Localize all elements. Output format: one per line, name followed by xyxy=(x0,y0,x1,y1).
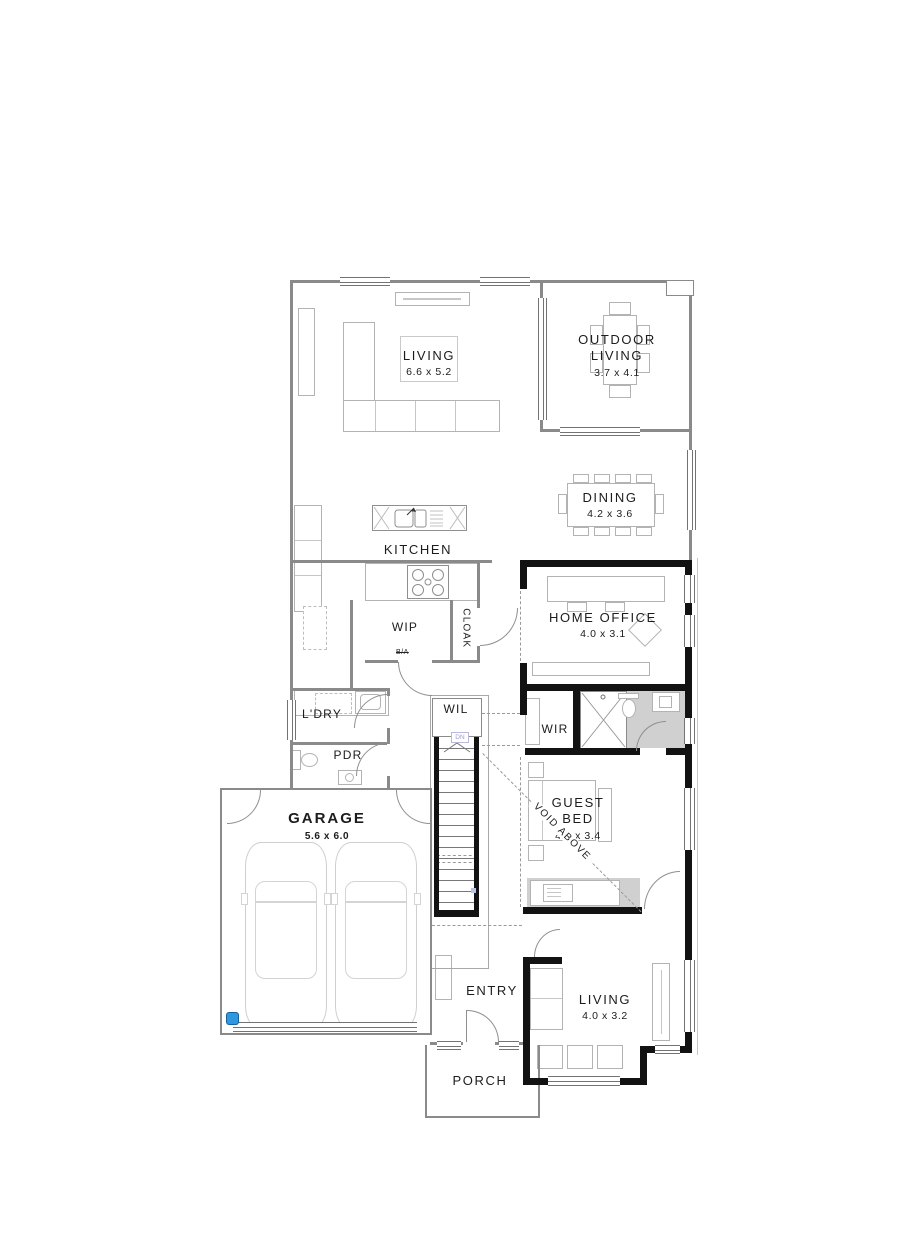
wall-segment xyxy=(477,563,480,608)
wil-label: WIL xyxy=(444,702,469,717)
room-name: CLOAK xyxy=(459,608,472,648)
porch-label: PORCH xyxy=(453,1073,508,1089)
wall-segment xyxy=(290,560,492,563)
dashed-line xyxy=(432,925,522,926)
floor-plan: LIVING 6.6 x 5.2 OUTDOOR LIVING 3.7 x 4.… xyxy=(215,270,697,1128)
room-dims: 3.7 x 4.1 xyxy=(572,367,662,379)
front-door-leaf xyxy=(466,1010,467,1042)
dn-annotation: DN xyxy=(451,732,469,743)
credenza xyxy=(532,662,650,676)
stairs-cut-line xyxy=(437,862,477,863)
living-top-stub-wall xyxy=(523,957,562,964)
dining-chair xyxy=(573,474,589,483)
home-office-label: HOME OFFICE 4.0 x 3.1 xyxy=(549,610,657,640)
room-name: KITCHEN xyxy=(384,542,452,558)
room-name: LIVING xyxy=(403,348,455,364)
wip-door-arc xyxy=(398,662,432,696)
wall-segment xyxy=(350,600,353,688)
room-name: WIR xyxy=(542,722,569,737)
room-name: WIL xyxy=(444,702,469,717)
room-dims: 5.6 x 6.0 xyxy=(288,831,366,842)
dashed-wall-over xyxy=(520,591,521,661)
bedside-table xyxy=(528,762,544,778)
room-name: WIP xyxy=(392,620,418,635)
window xyxy=(655,1045,680,1054)
room-dims: 4.0 x 3.1 xyxy=(549,628,657,640)
cabinet-divider xyxy=(295,540,321,541)
dining-chair xyxy=(594,527,610,536)
living-room-label: LIVING 6.6 x 5.2 xyxy=(403,348,455,378)
wall-segment xyxy=(290,688,390,691)
dashed-line xyxy=(482,745,520,746)
window xyxy=(340,277,390,286)
guest-bed-door-arc xyxy=(644,871,680,909)
guest-living-label: LIVING 4.0 x 3.2 xyxy=(579,992,631,1022)
stairs xyxy=(439,748,474,911)
window xyxy=(687,450,696,530)
shower xyxy=(580,691,627,754)
room-name: PORCH xyxy=(453,1073,508,1089)
wir-label: WIR xyxy=(542,722,569,737)
laundry-label: L'DRY xyxy=(302,707,342,722)
garage-door-panel xyxy=(233,1022,417,1032)
sofa-seam xyxy=(455,401,456,431)
dining-chair xyxy=(615,527,631,536)
room-name: HOME OFFICE xyxy=(549,610,657,626)
bath-basin xyxy=(659,696,672,708)
front-door-arc xyxy=(467,1010,499,1042)
dining-label: DINING 4.2 x 3.6 xyxy=(582,490,637,520)
kitchenette-sink xyxy=(543,884,573,902)
garage-tap-icon xyxy=(226,1012,239,1025)
sink-lines xyxy=(547,896,561,897)
room-name: L'DRY xyxy=(302,707,342,722)
kitchen-island xyxy=(372,503,467,538)
sofa-guest xyxy=(530,968,563,1030)
window xyxy=(684,960,695,1032)
room-dims: 4.0 x 3.2 xyxy=(579,1010,631,1022)
tv-line xyxy=(403,298,461,300)
wir-shelf xyxy=(525,698,540,745)
sink-lines xyxy=(547,888,561,889)
ba-cupboard xyxy=(303,606,327,650)
fridge-pantry-cabinet xyxy=(294,505,322,612)
office-wir-divider-wall xyxy=(520,684,692,691)
window xyxy=(538,298,547,420)
room-name: GARAGE xyxy=(288,810,366,829)
window xyxy=(684,615,695,647)
cooktop xyxy=(407,565,449,604)
room-name: ENTRY xyxy=(466,983,518,999)
sink-lines xyxy=(547,892,561,893)
wall-segment xyxy=(290,742,387,745)
dashed-line xyxy=(482,713,520,714)
sofa-seam xyxy=(415,401,416,431)
room-name: DINING xyxy=(582,490,637,506)
living-door-arc xyxy=(534,929,560,957)
cloak-label: CLOAK xyxy=(445,622,485,635)
cabinet xyxy=(298,308,315,396)
dining-chair xyxy=(573,527,589,536)
tv-line xyxy=(661,970,662,1034)
outdoor-chair xyxy=(609,385,631,398)
pdr-toilet-bowl xyxy=(301,753,318,767)
dining-chair xyxy=(655,494,664,514)
window xyxy=(480,277,530,286)
window xyxy=(560,427,640,436)
wall-segment xyxy=(387,776,390,788)
shower-divider-wall xyxy=(573,691,580,755)
dashed-wall-over xyxy=(520,757,521,907)
sofa xyxy=(343,400,500,432)
outdoor-living-label: OUTDOOR LIVING 3.7 x 4.1 xyxy=(572,332,662,379)
room-name: LIVING xyxy=(579,992,631,1008)
cabinet-divider xyxy=(295,575,321,576)
pdr-toilet-tank xyxy=(292,750,301,770)
stair-wall xyxy=(434,910,479,917)
dining-chair xyxy=(615,474,631,483)
entry-sidelight xyxy=(499,1041,519,1050)
floor-plan-page: LIVING 6.6 x 5.2 OUTDOOR LIVING 3.7 x 4.… xyxy=(0,0,901,1246)
outdoor-post xyxy=(666,280,694,296)
ba-annotation: B/A xyxy=(396,649,409,656)
window xyxy=(287,700,296,740)
bedside-table xyxy=(528,845,544,861)
room-name: OUTDOOR LIVING xyxy=(572,332,662,365)
room-dims: 6.6 x 5.2 xyxy=(403,366,455,378)
entry-label: ENTRY xyxy=(466,983,518,999)
home-office-top-wall xyxy=(520,560,692,567)
toilet-bowl xyxy=(622,699,636,718)
bath-south-wall xyxy=(580,748,640,755)
garage-label: GARAGE 5.6 x 6.0 xyxy=(288,810,366,842)
dining-chair xyxy=(636,474,652,483)
wall-segment xyxy=(432,660,480,663)
roof-line xyxy=(697,558,698,1055)
ottoman xyxy=(537,1045,563,1069)
outdoor-chair xyxy=(609,302,631,315)
stair-wall xyxy=(434,737,439,917)
stairs-cut-line xyxy=(437,855,477,856)
living-west-wall xyxy=(523,957,530,1085)
sofa-seam xyxy=(375,401,376,431)
entry-sidelight xyxy=(437,1041,461,1050)
sofa-seam xyxy=(531,998,562,999)
cloak-door-arc xyxy=(480,608,518,646)
ottoman xyxy=(567,1045,593,1069)
dining-chair xyxy=(636,527,652,536)
ottoman xyxy=(597,1045,623,1069)
wir-south-wall xyxy=(525,748,582,755)
pdr-label: PDR xyxy=(334,748,363,763)
wall-segment xyxy=(365,660,398,663)
wall-segment xyxy=(520,691,527,715)
office-desk xyxy=(547,576,665,602)
wip-label: WIP xyxy=(392,620,418,635)
kitchenette-south-wall xyxy=(523,907,642,914)
dining-chair xyxy=(558,494,567,514)
wall-segment xyxy=(520,567,527,589)
window xyxy=(684,575,695,603)
window xyxy=(684,718,695,744)
kitchen-label: KITCHEN xyxy=(384,542,452,558)
stairs-marker-icon xyxy=(471,888,476,893)
room-dims: 4.2 x 3.6 xyxy=(582,508,637,520)
dining-chair xyxy=(594,474,610,483)
window xyxy=(684,788,695,850)
window xyxy=(548,1076,620,1086)
pdr-basin xyxy=(345,773,354,782)
room-name: PDR xyxy=(334,748,363,763)
